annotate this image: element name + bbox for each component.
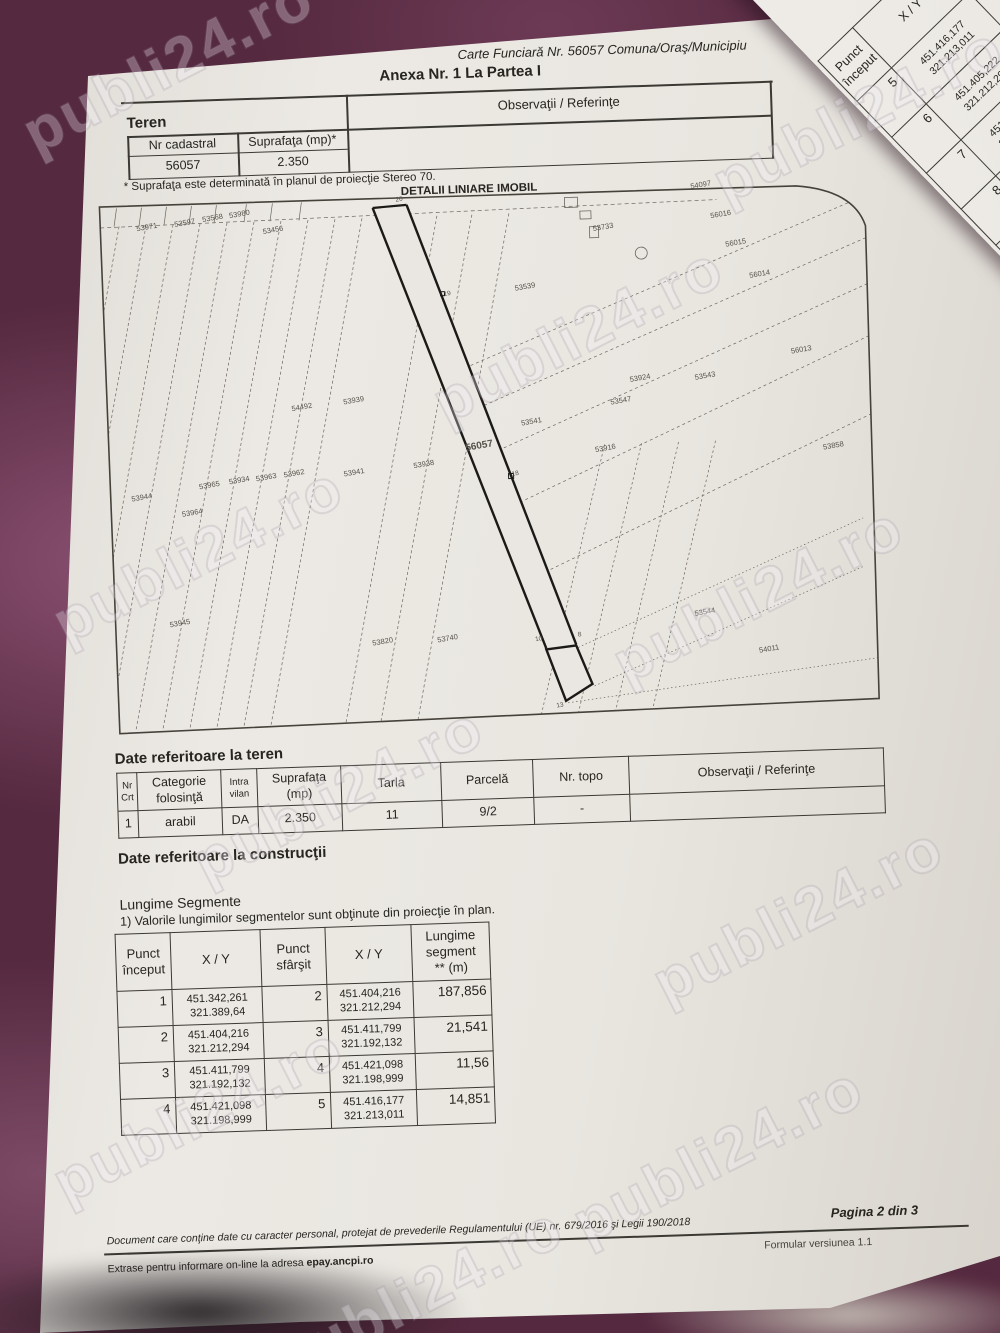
parcel-label: 56016 xyxy=(710,208,732,220)
building-outline xyxy=(580,211,591,219)
map-line xyxy=(96,224,217,732)
map-line xyxy=(269,203,273,221)
cell: 451.411,799 321.192,132 xyxy=(174,1059,265,1098)
cell: 187,856 xyxy=(413,979,492,1018)
column-header: Categorie folosinţă xyxy=(137,770,222,811)
nr-cadastral-header: Nr cadastral xyxy=(127,135,237,153)
parcel-label: 53941 xyxy=(343,466,365,478)
map-line xyxy=(591,566,869,686)
suprafata-value: 2.350 xyxy=(238,153,348,171)
anexa-title: Anexa Nr. 1 La Partea I xyxy=(310,60,610,87)
round-feature xyxy=(635,247,647,259)
footer-privacy-note: Document care conţine date cu caracter p… xyxy=(107,1216,691,1247)
column-header: Punct început xyxy=(115,933,172,992)
column-header: Tarla xyxy=(341,763,442,804)
cell: 11,56 xyxy=(415,1051,494,1090)
map-line xyxy=(146,222,271,730)
cell: 9/2 xyxy=(442,797,535,827)
map-line xyxy=(567,657,881,702)
shadow-blob xyxy=(0,1252,470,1333)
parcel-label: 53962 xyxy=(283,467,305,479)
parcel-label: 53924 xyxy=(629,371,651,383)
parcel-label: 53980 xyxy=(228,208,250,220)
column-header: X / Y xyxy=(170,930,262,990)
date-teren-heading: Date referitoare la teren xyxy=(114,745,283,768)
map-line xyxy=(544,414,877,571)
cell: 451.416,177 321.213,011 xyxy=(330,1090,417,1129)
cell: 451.421,098 321.198,999 xyxy=(329,1054,416,1093)
segmente-table: Punct începutX / YPunct sfârşitX / YLung… xyxy=(115,921,496,1135)
parcel-label: 53543 xyxy=(694,369,716,381)
parcel-label: 53964 xyxy=(181,506,203,518)
cell: 1 xyxy=(118,811,139,839)
map-line xyxy=(606,442,688,715)
cell: 2 xyxy=(118,1026,174,1064)
cadastral-map: 5397153597535685398053456537335409756016… xyxy=(96,165,892,742)
parcel-label: 54492 xyxy=(291,401,313,413)
parcel-label: 53456 xyxy=(262,224,284,236)
teren-table-line xyxy=(770,81,774,159)
segments-table: Punct începutX / YPunct sfârşitX / YLung… xyxy=(115,921,496,1135)
point-label: 18 xyxy=(511,470,520,478)
column-header: Parcelă xyxy=(441,759,534,800)
parcel-label: 53733 xyxy=(592,221,614,233)
cell: 451.411,799 321.192,132 xyxy=(328,1018,415,1057)
parcel-label: 53820 xyxy=(372,635,394,647)
cell: 3 xyxy=(119,1062,175,1100)
parcel-label: 53965 xyxy=(198,479,220,491)
cell: 451.421,098 321.198,999 xyxy=(175,1095,266,1134)
nr-cadastral-value: 56057 xyxy=(128,156,238,174)
teren-heading: Teren xyxy=(126,114,166,132)
cell: 2.350 xyxy=(258,804,343,834)
cell: 3 xyxy=(263,1020,329,1058)
column-header: Intra vilan xyxy=(221,769,258,808)
cell: 2 xyxy=(262,984,328,1022)
footer-page-number: Pagina 2 din 3 xyxy=(778,1202,918,1222)
map-line xyxy=(574,518,867,648)
map-line xyxy=(119,223,244,731)
column-header: X / Y xyxy=(325,925,413,985)
cell: 14,851 xyxy=(416,1087,495,1126)
column-header: Nr. topo xyxy=(532,756,629,797)
cell: 451.404,216 321.212,294 xyxy=(173,1023,264,1062)
parcel-label: 53944 xyxy=(131,491,153,503)
cell: 5 xyxy=(265,1092,331,1130)
parcel-56057-fill xyxy=(373,200,577,654)
parcel-56057-tail xyxy=(546,645,593,701)
map-line xyxy=(465,196,870,366)
date-constructii-heading: Date referitoare la construcţii xyxy=(118,844,327,868)
map-line xyxy=(96,225,163,733)
parcel-label: 53971 xyxy=(136,221,158,233)
parcel-label: 53945 xyxy=(169,617,191,629)
column-header: Punct sfârşit xyxy=(260,927,327,986)
parcel-label: 56013 xyxy=(790,343,812,355)
map-line xyxy=(113,208,117,226)
footer-formular-version: Formular versiunea 1.1 xyxy=(764,1236,872,1252)
photo-of-cadastral-document: Carte Funciară Nr. 56057 Comuna/Oraş/Mun… xyxy=(0,0,1000,1333)
column-header: Suprafaţa (mp) xyxy=(257,766,342,807)
map-line xyxy=(298,202,302,220)
point-label: 20 xyxy=(395,195,404,203)
cell: 451.404,216 321.212,294 xyxy=(327,982,414,1021)
parcel-label: 53938 xyxy=(413,458,435,470)
point-label: 19 xyxy=(443,290,452,298)
parcel-label: 53539 xyxy=(514,280,536,292)
parcel-label: 53934 xyxy=(228,474,250,486)
map-line xyxy=(96,226,136,734)
parcel-label: 53541 xyxy=(520,415,542,427)
map-line xyxy=(643,441,725,714)
column-header: Lungime segment ** (m) xyxy=(411,922,491,982)
parcel-label: 56014 xyxy=(749,267,771,279)
map-line xyxy=(517,336,874,502)
parcel-label: 53858 xyxy=(822,439,844,451)
parcel-label: 53963 xyxy=(255,471,277,483)
cell: DA xyxy=(222,807,259,835)
parcel-label: 54011 xyxy=(758,642,780,654)
map-line xyxy=(479,238,871,406)
suprafata-header: Suprafaţa (mp)* xyxy=(237,132,347,150)
parcel-label: 53544 xyxy=(694,605,716,617)
parcel-label: 53740 xyxy=(437,632,459,644)
teren-table-line xyxy=(127,115,772,138)
map-line xyxy=(163,207,167,225)
document-content: Carte Funciară Nr. 56057 Comuna/Oraş/Mun… xyxy=(0,0,1000,1333)
cell: 21,541 xyxy=(414,1015,493,1054)
cell: 4 xyxy=(264,1056,330,1094)
lungime-segmente-heading: Lungime Segmente xyxy=(119,893,241,913)
point-label: 8 xyxy=(577,631,582,639)
cell: 11 xyxy=(342,801,443,831)
cell: 451.342,261 321.389,64 xyxy=(172,987,263,1026)
column-header: Nr Crt xyxy=(117,773,138,812)
parcel-label: 53939 xyxy=(343,394,365,406)
cell: 4 xyxy=(121,1097,177,1135)
parcel-label: 56015 xyxy=(725,236,747,248)
main-document-sheet: Carte Funciară Nr. 56057 Comuna/Oraş/Mun… xyxy=(0,0,1000,1333)
parcel-label: 53547 xyxy=(610,394,632,406)
parcel-label: 53916 xyxy=(594,442,616,454)
cell: arabil xyxy=(138,808,223,838)
cell: 1 xyxy=(117,990,173,1028)
parcel-label: 53597 xyxy=(174,217,196,229)
point-label: 13 xyxy=(556,701,565,709)
cell: - xyxy=(534,794,631,824)
